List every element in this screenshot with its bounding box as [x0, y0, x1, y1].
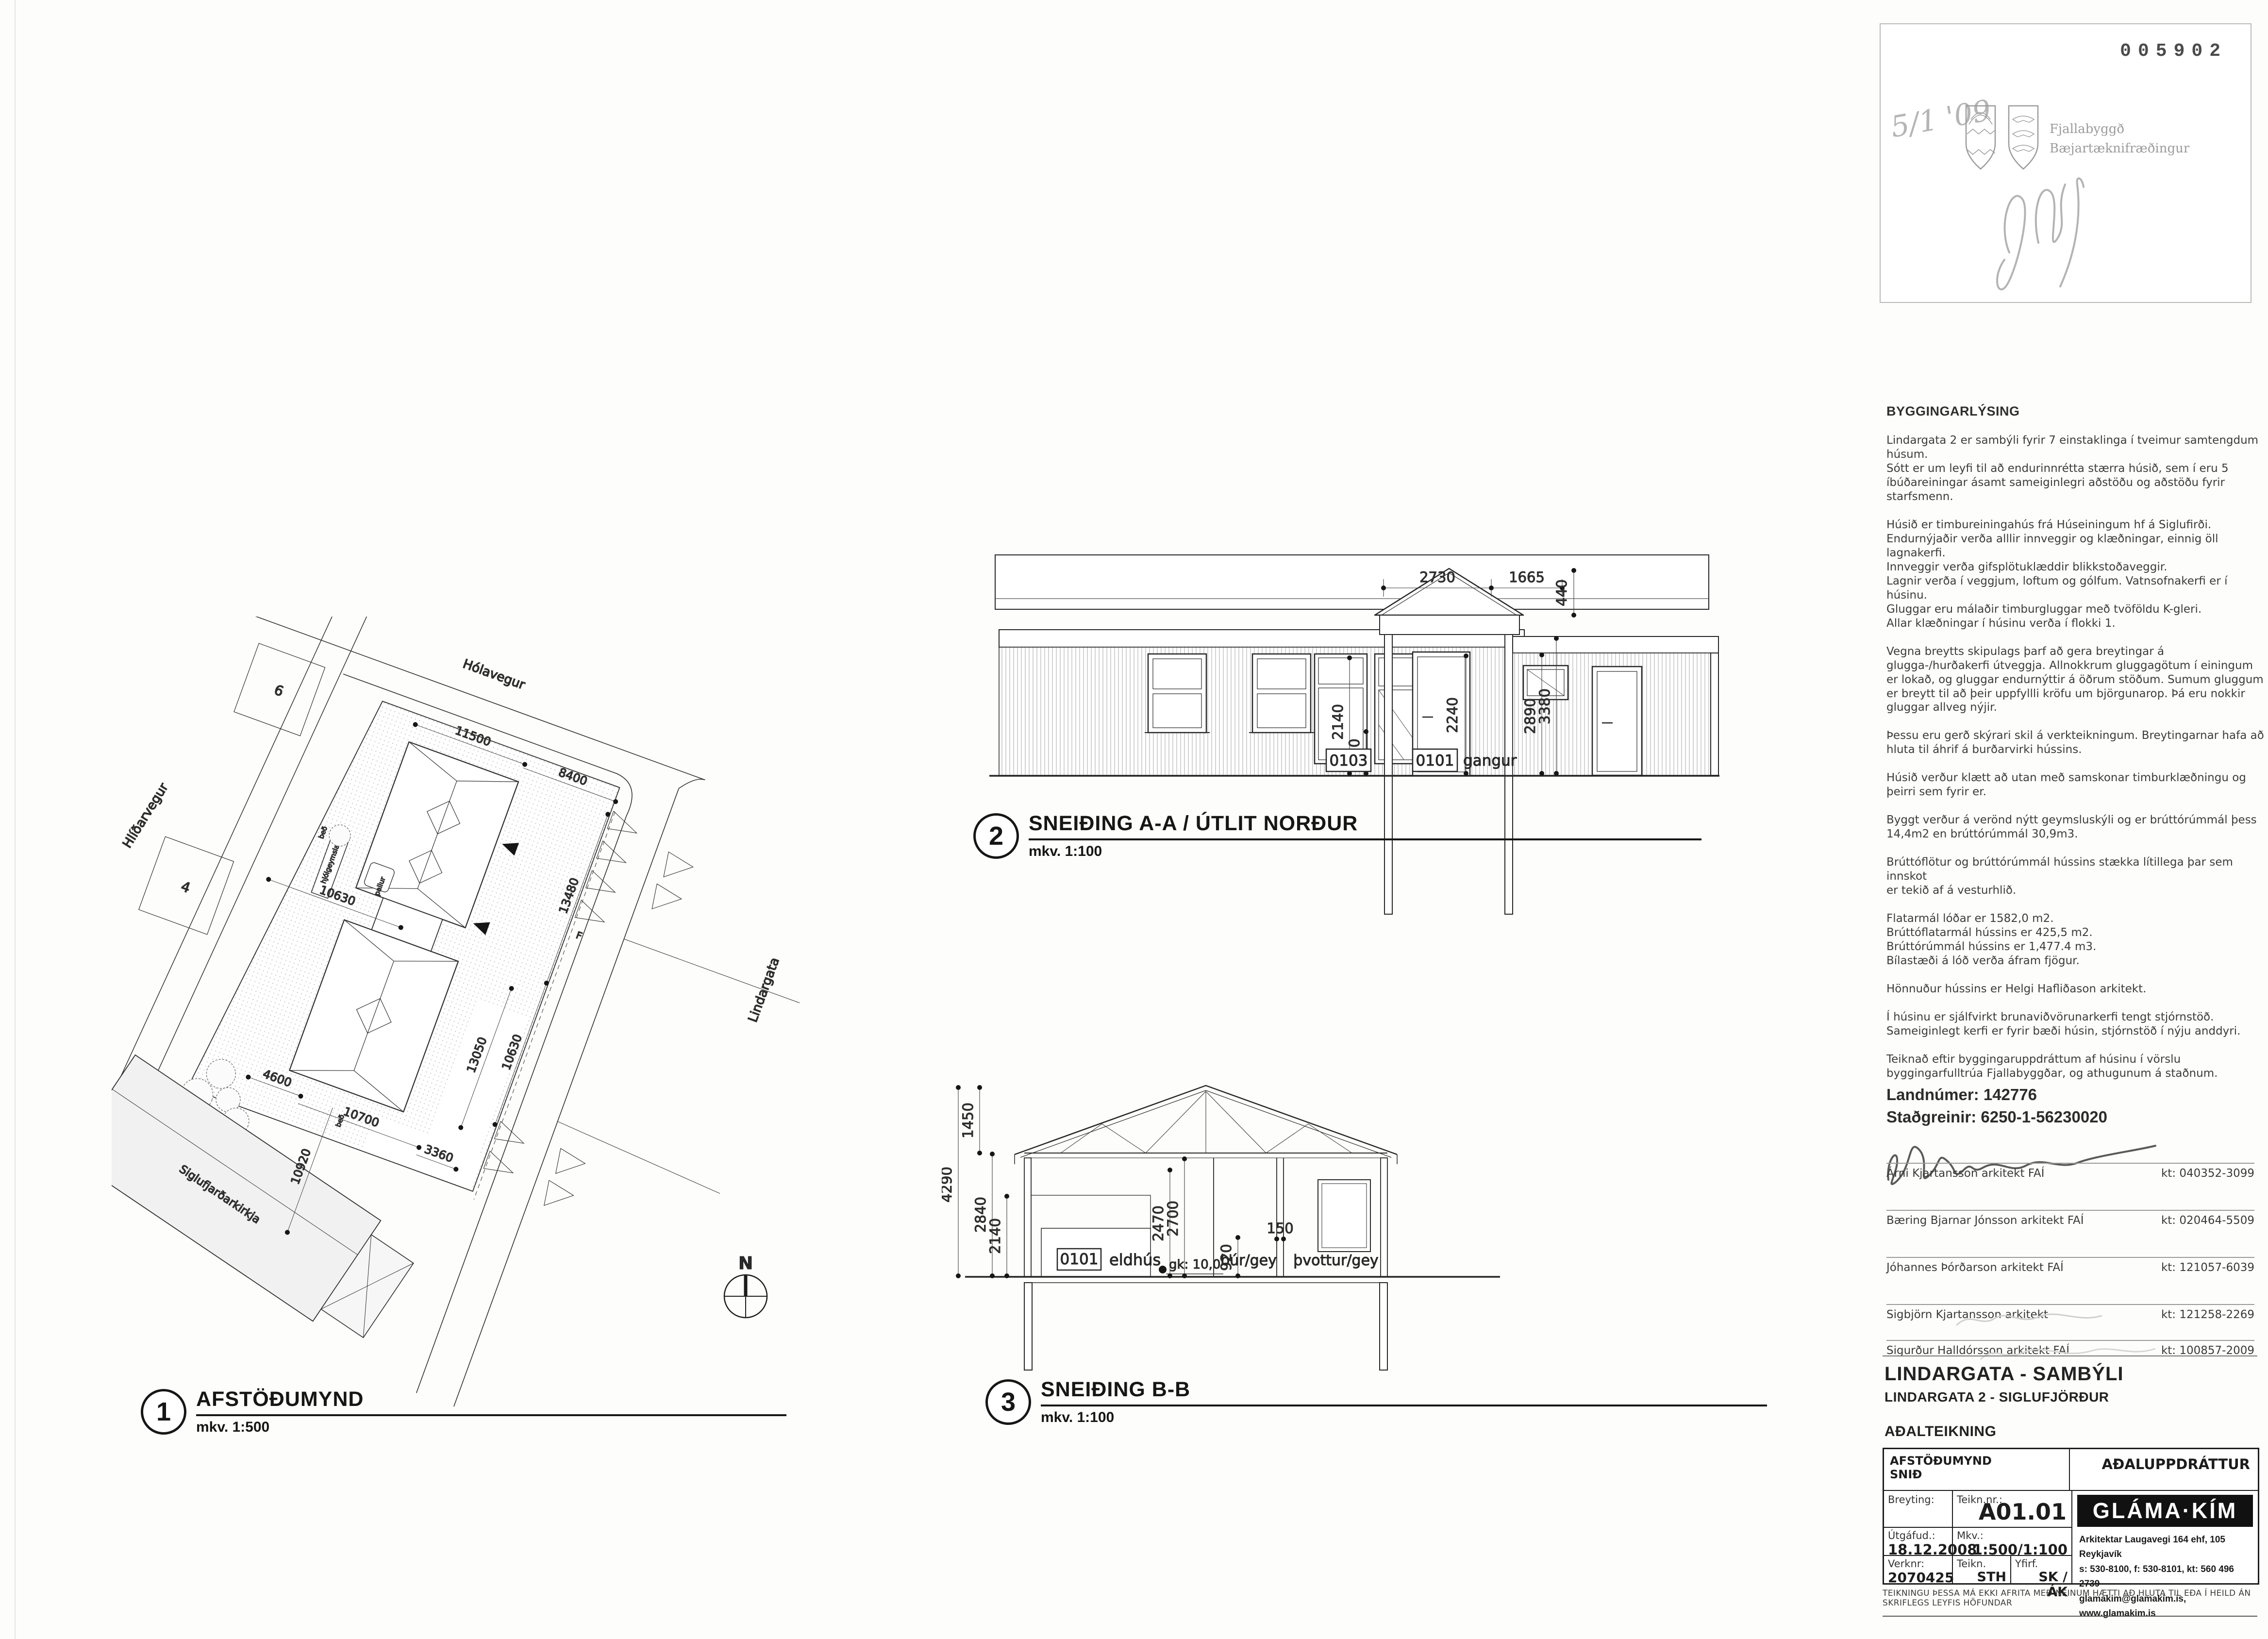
- building-description-title: BYGGINGARLÝSING: [1886, 404, 2268, 419]
- dim-2700: 2700: [1165, 1201, 1181, 1237]
- issue-date: 18.12.2008: [1888, 1541, 1948, 1558]
- stamp-signature-mark: [1983, 165, 2109, 296]
- figure-number: 3: [985, 1379, 1031, 1425]
- scale-label: Mkv.:: [1957, 1530, 1984, 1541]
- signature-row: Bæring Bjarnar Jónsson arkitekt FAÍ kt: …: [1886, 1210, 2254, 1227]
- north-arrow-icon: N: [724, 1254, 767, 1318]
- plot-4-number: 4: [179, 878, 192, 896]
- description-paragraph: Húsið er timbureiningahús frá Húseiningu…: [1886, 518, 2268, 631]
- signature-row: Árni Kjartansson arkitekt FAÍ kt: 040352…: [1886, 1163, 2254, 1180]
- building-description: BYGGINGARLÝSING Lindargata 2 er sambýli …: [1886, 404, 2268, 1095]
- description-paragraph: Byggt verður á verönd nýtt geymsluskýli …: [1886, 813, 2268, 841]
- figure-rule: [1041, 1405, 1767, 1406]
- kitchen-bulkhead: [1031, 1195, 1151, 1228]
- stamp-org-line2: Bæjartæknifræðingur: [2050, 139, 2189, 158]
- dim-2890: 2890: [1522, 698, 1538, 734]
- drawing-type: AÐALTEIKNING: [1884, 1423, 1996, 1440]
- sheet-number-cell: Teikn.nr.: A01.01: [1953, 1491, 2072, 1528]
- dim-1665: 1665: [1509, 569, 1545, 585]
- window: [1249, 654, 1314, 733]
- stamp-serial-number: 005902: [2120, 41, 2227, 62]
- drawing-class-cell: AÐALUPPDRÁTTUR: [2070, 1449, 2258, 1491]
- stamp-organization: Fjallabyggð Bæjartæknifræðingur: [2050, 119, 2189, 159]
- dim-2730: 2730: [1419, 569, 1455, 585]
- room-label-gangur: gangur: [1463, 752, 1517, 769]
- scale-value: 1:500/1:100: [1957, 1541, 2068, 1558]
- checked-by-label: Yfirf.: [2015, 1558, 2038, 1570]
- room-tag-0101: 0101: [1416, 752, 1454, 769]
- sheet-content-cell: AFSTÖÐUMYND SNIÐ: [1884, 1449, 2070, 1491]
- street-label-lindargata: Lindargata: [746, 955, 783, 1024]
- dim-440: 440: [1553, 579, 1570, 606]
- foundation-post: [1024, 1283, 1032, 1370]
- room-label-eldhus: eldhús: [1109, 1251, 1161, 1269]
- window: [1318, 1180, 1370, 1252]
- figure-number: 1: [141, 1389, 186, 1435]
- firm-address-line2: s: 530-8100, f: 530-8101, kt: 560 496 27…: [2079, 1562, 2254, 1592]
- foundation-post: [1380, 1283, 1387, 1370]
- breyting-cell: Breyting:: [1884, 1491, 1953, 1528]
- drawing-class: AÐALUPPDRÁTTUR: [2102, 1456, 2250, 1472]
- dim-3380: 3380: [1536, 688, 1553, 724]
- dim-150: 150: [1267, 1220, 1293, 1237]
- description-paragraph: Þessu eru gerð skýrari skil á verkteikni…: [1886, 729, 2268, 757]
- figure-title-1: 1 AFSTÖÐUMYND mkv. 1:500: [141, 1388, 786, 1436]
- dim-1450: 1450: [960, 1103, 976, 1138]
- window: [1145, 654, 1210, 733]
- room-tag-0103: 0103: [1330, 752, 1368, 769]
- dim-2140: 2140: [1330, 704, 1346, 740]
- figure-name: AFSTÖÐUMYND: [196, 1388, 786, 1411]
- drawn-by-label: Teikn.: [1957, 1558, 1986, 1570]
- site-plan-drawing: pallur hjólgeymsla F: [112, 617, 825, 1432]
- street-label-hlidarvegur: Hlíðarvegur: [120, 781, 171, 851]
- north-label: N: [738, 1254, 753, 1273]
- figure-rule: [196, 1414, 786, 1416]
- drawn-by-cell: Teikn. STH: [1953, 1556, 2011, 1583]
- titleblock-top-rule: [1883, 1355, 2257, 1356]
- project-address: LINDARGATA 2 - SIGLUFJÖRÐUR: [1884, 1389, 2109, 1405]
- figure-rule: [1029, 838, 1701, 840]
- side-door: [1592, 667, 1642, 775]
- project-number-label: Verknr:: [1888, 1558, 1924, 1570]
- stamp-org-line1: Fjallabyggð: [2050, 119, 2189, 139]
- description-paragraph: Í húsinu er sjálfvirkt brunaviðvörunarke…: [1886, 1010, 2268, 1038]
- dim-4290: 4290: [942, 1167, 955, 1203]
- architect-kt: kt: 020464-5509: [2161, 1214, 2254, 1227]
- architect-name: Bæring Bjarnar Jónsson arkitekt FAÍ: [1886, 1214, 2084, 1227]
- section-aa-drawing: 2730 1665 440 2240 2140 920 2890 3380 01…: [961, 541, 1786, 930]
- room-label-thvottur: þvottur/gey: [1293, 1252, 1378, 1269]
- figure-scale: mkv. 1:100: [1029, 843, 1701, 860]
- copyright-disclaimer: TEIKNINGU ÞESSA MÁ EKKI AFRITA MEÐ NEINU…: [1883, 1589, 2257, 1617]
- description-paragraph: Flatarmál lóðar er 1582,0 m2. Brúttóflat…: [1886, 912, 2268, 968]
- firm-cell: GLÁMA·KÍM Arkitektar Laugavegi 164 ehf, …: [2072, 1491, 2258, 1583]
- sheet-content-2: SNIÐ: [1890, 1468, 2063, 1481]
- project-number: 2070425: [1888, 1570, 1948, 1586]
- drawn-by: STH: [1957, 1570, 2006, 1585]
- dim-2140: 2140: [987, 1218, 1003, 1254]
- issue-date-label: Útgáfud.:: [1888, 1530, 1935, 1541]
- room-tag-0101: 0101: [1060, 1251, 1099, 1268]
- description-paragraph: Lindargata 2 er sambýli fyrir 7 einstakl…: [1886, 434, 2268, 504]
- section-bb-drawing: 1450 4290 2840 2140 2470 2700 920 150 gk…: [942, 1068, 1524, 1408]
- figure-title-3: 3 SNEIÐING B-B mkv. 1:100: [985, 1378, 1767, 1426]
- approval-stamp: 005902 5/1 '09 Fjallabyggð Bæjartæknifræ…: [1880, 23, 2251, 303]
- figure-title-2: 2 SNEIÐING A-A / ÚTLIT NORÐUR mkv. 1:100: [973, 812, 1701, 860]
- roof-truss: [1015, 1086, 1397, 1164]
- plot-6-number: 6: [272, 682, 285, 700]
- sheet-edge: [15, 0, 16, 1639]
- architect-kt: kt: 040352-3099: [2161, 1167, 2254, 1180]
- checked-by-cell: Yfirf. SK / ÁK: [2011, 1556, 2072, 1583]
- figure-name: SNEIÐING A-A / ÚTLIT NORÐUR: [1029, 812, 1701, 836]
- description-paragraph: Hönnuður hússins er Helgi Hafliðason ark…: [1886, 982, 2268, 996]
- figure-name: SNEIÐING B-B: [1041, 1378, 1767, 1402]
- rear-roof-band: [995, 555, 1709, 609]
- project-number-cell: Verknr: 2070425: [1884, 1556, 1953, 1583]
- figure-scale: mkv. 1:100: [1041, 1409, 1767, 1426]
- architect-name: Jóhannes Þórðarson arkitekt FAÍ: [1886, 1261, 2064, 1274]
- scale-cell: Mkv.: 1:500/1:100: [1953, 1528, 2072, 1556]
- figure-scale: mkv. 1:500: [196, 1419, 786, 1436]
- description-paragraph: Teiknað eftir byggingaruppdráttum af hús…: [1886, 1053, 2268, 1081]
- street-label-holavegur: Hólavegur: [461, 657, 527, 693]
- breyting-label: Breyting:: [1888, 1494, 1934, 1505]
- sheet-content-1: AFSTÖÐUMYND: [1890, 1454, 2063, 1468]
- land-number: Landnúmer: 142776: [1886, 1084, 2107, 1106]
- floor-level-gk: gk: 10,0: [1169, 1257, 1220, 1272]
- sheet-number: A01.01: [1979, 1499, 2067, 1525]
- figure-number: 2: [973, 813, 1019, 859]
- exterior-wall: [1024, 1158, 1031, 1277]
- accessible-parking-label: F: [574, 929, 584, 942]
- signature-row: Jóhannes Þórðarson arkitekt FAÍ kt: 1210…: [1886, 1257, 2254, 1274]
- dim-2470: 2470: [1150, 1205, 1167, 1241]
- description-paragraph: Húsið verður klætt að utan með samskonar…: [1886, 771, 2268, 799]
- description-paragraph: Brúttóflötur og brúttórúmmál hússins stæ…: [1886, 855, 2268, 898]
- firm-address-line1: Arkitektar Laugavegi 164 ehf, 105 Reykja…: [2079, 1533, 2254, 1562]
- architect-name: Árni Kjartansson arkitekt FAÍ: [1886, 1167, 2044, 1180]
- glama-kim-logo: GLÁMA·KÍM: [2077, 1495, 2253, 1527]
- dim-2840: 2840: [972, 1197, 989, 1233]
- room-label-bur: búr/gey: [1220, 1252, 1277, 1269]
- issue-date-cell: Útgáfud.: 18.12.2008: [1884, 1528, 1953, 1556]
- description-paragraph: Vegna breytts skipulags þarf að gera bre…: [1886, 645, 2268, 715]
- dim-2240: 2240: [1444, 697, 1461, 733]
- architect-signature-mark: [1884, 1117, 2252, 1199]
- project-title: LINDARGATA - SAMBÝLI: [1884, 1363, 2124, 1385]
- exterior-wall: [1381, 1158, 1387, 1277]
- titleblock-table: AFSTÖÐUMYND SNIÐ AÐALUPPDRÁTTUR Breyting…: [1883, 1448, 2259, 1585]
- architect-kt: kt: 121057-6039: [2161, 1261, 2254, 1274]
